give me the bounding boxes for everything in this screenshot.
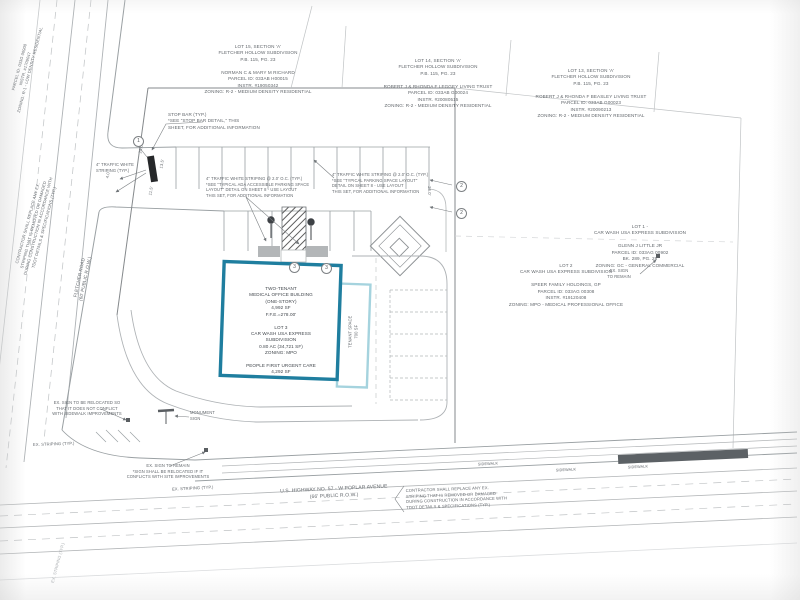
site-plan-canvas: LOT 15, SECTION 'A' FLETCHER HOLLOW SUBD… [0, 0, 800, 600]
ex-sign-relocate-note: EX. SIGN TO BE RELOCATED SO THAT IT DOES… [40, 400, 134, 417]
lot13-parcel-note: LOT 13, SECTION 'A' FLETCHER HOLLOW SUBD… [528, 68, 654, 119]
contractor-note-bottom: CONTRACTOR SHALL REPLACE ANY EX. STRIPIN… [406, 484, 519, 511]
lot14-parcel-note: LOT 14, SECTION 'A' FLETCHER HOLLOW SUBD… [375, 58, 501, 109]
ex-sign-remain-note: EX. SIGN TO REMAIN *SIGN SHALL BE RELOCA… [120, 463, 216, 480]
building-label: TWO-TENANT MEDICAL OFFICE BUILDING (ONE-… [221, 286, 341, 376]
ada-striping-note: 4" TRAFFIC WHITE STRIPING @ 2.0' O.C. (T… [206, 176, 342, 199]
keynote-bubble-2: 2 [456, 208, 467, 219]
ex-sign-remain-right-note: EX. SIGN TO REMAIN [596, 268, 642, 279]
monument-sign-label: MONUMENT SIGN [190, 410, 236, 421]
keynote-bubble-3: 3 [321, 263, 332, 274]
monument-sign-icon [158, 410, 174, 411]
crosswalk-hatch [282, 207, 306, 252]
keynote-bubble-3: 3 [289, 262, 300, 273]
keynote-bubble-2: 2 [456, 181, 467, 192]
ex-sign-icon [126, 418, 130, 422]
dumpster-enclosure [370, 216, 429, 275]
east-parking-stalls [390, 290, 447, 400]
tenant-space-label: TENANT SPACE 700 SF [347, 302, 358, 362]
ex-sign-icon [204, 448, 208, 452]
lot15-parcel-note: LOT 15, SECTION 'A' FLETCHER HOLLOW SUBD… [196, 44, 320, 95]
stop-bar-note: STOP BAR (TYP.) *SEE "STOP BAR DETAIL," … [168, 112, 300, 131]
dimension-label: 26.0' [426, 182, 432, 200]
keynote-bubble-1: 1 [133, 136, 144, 147]
